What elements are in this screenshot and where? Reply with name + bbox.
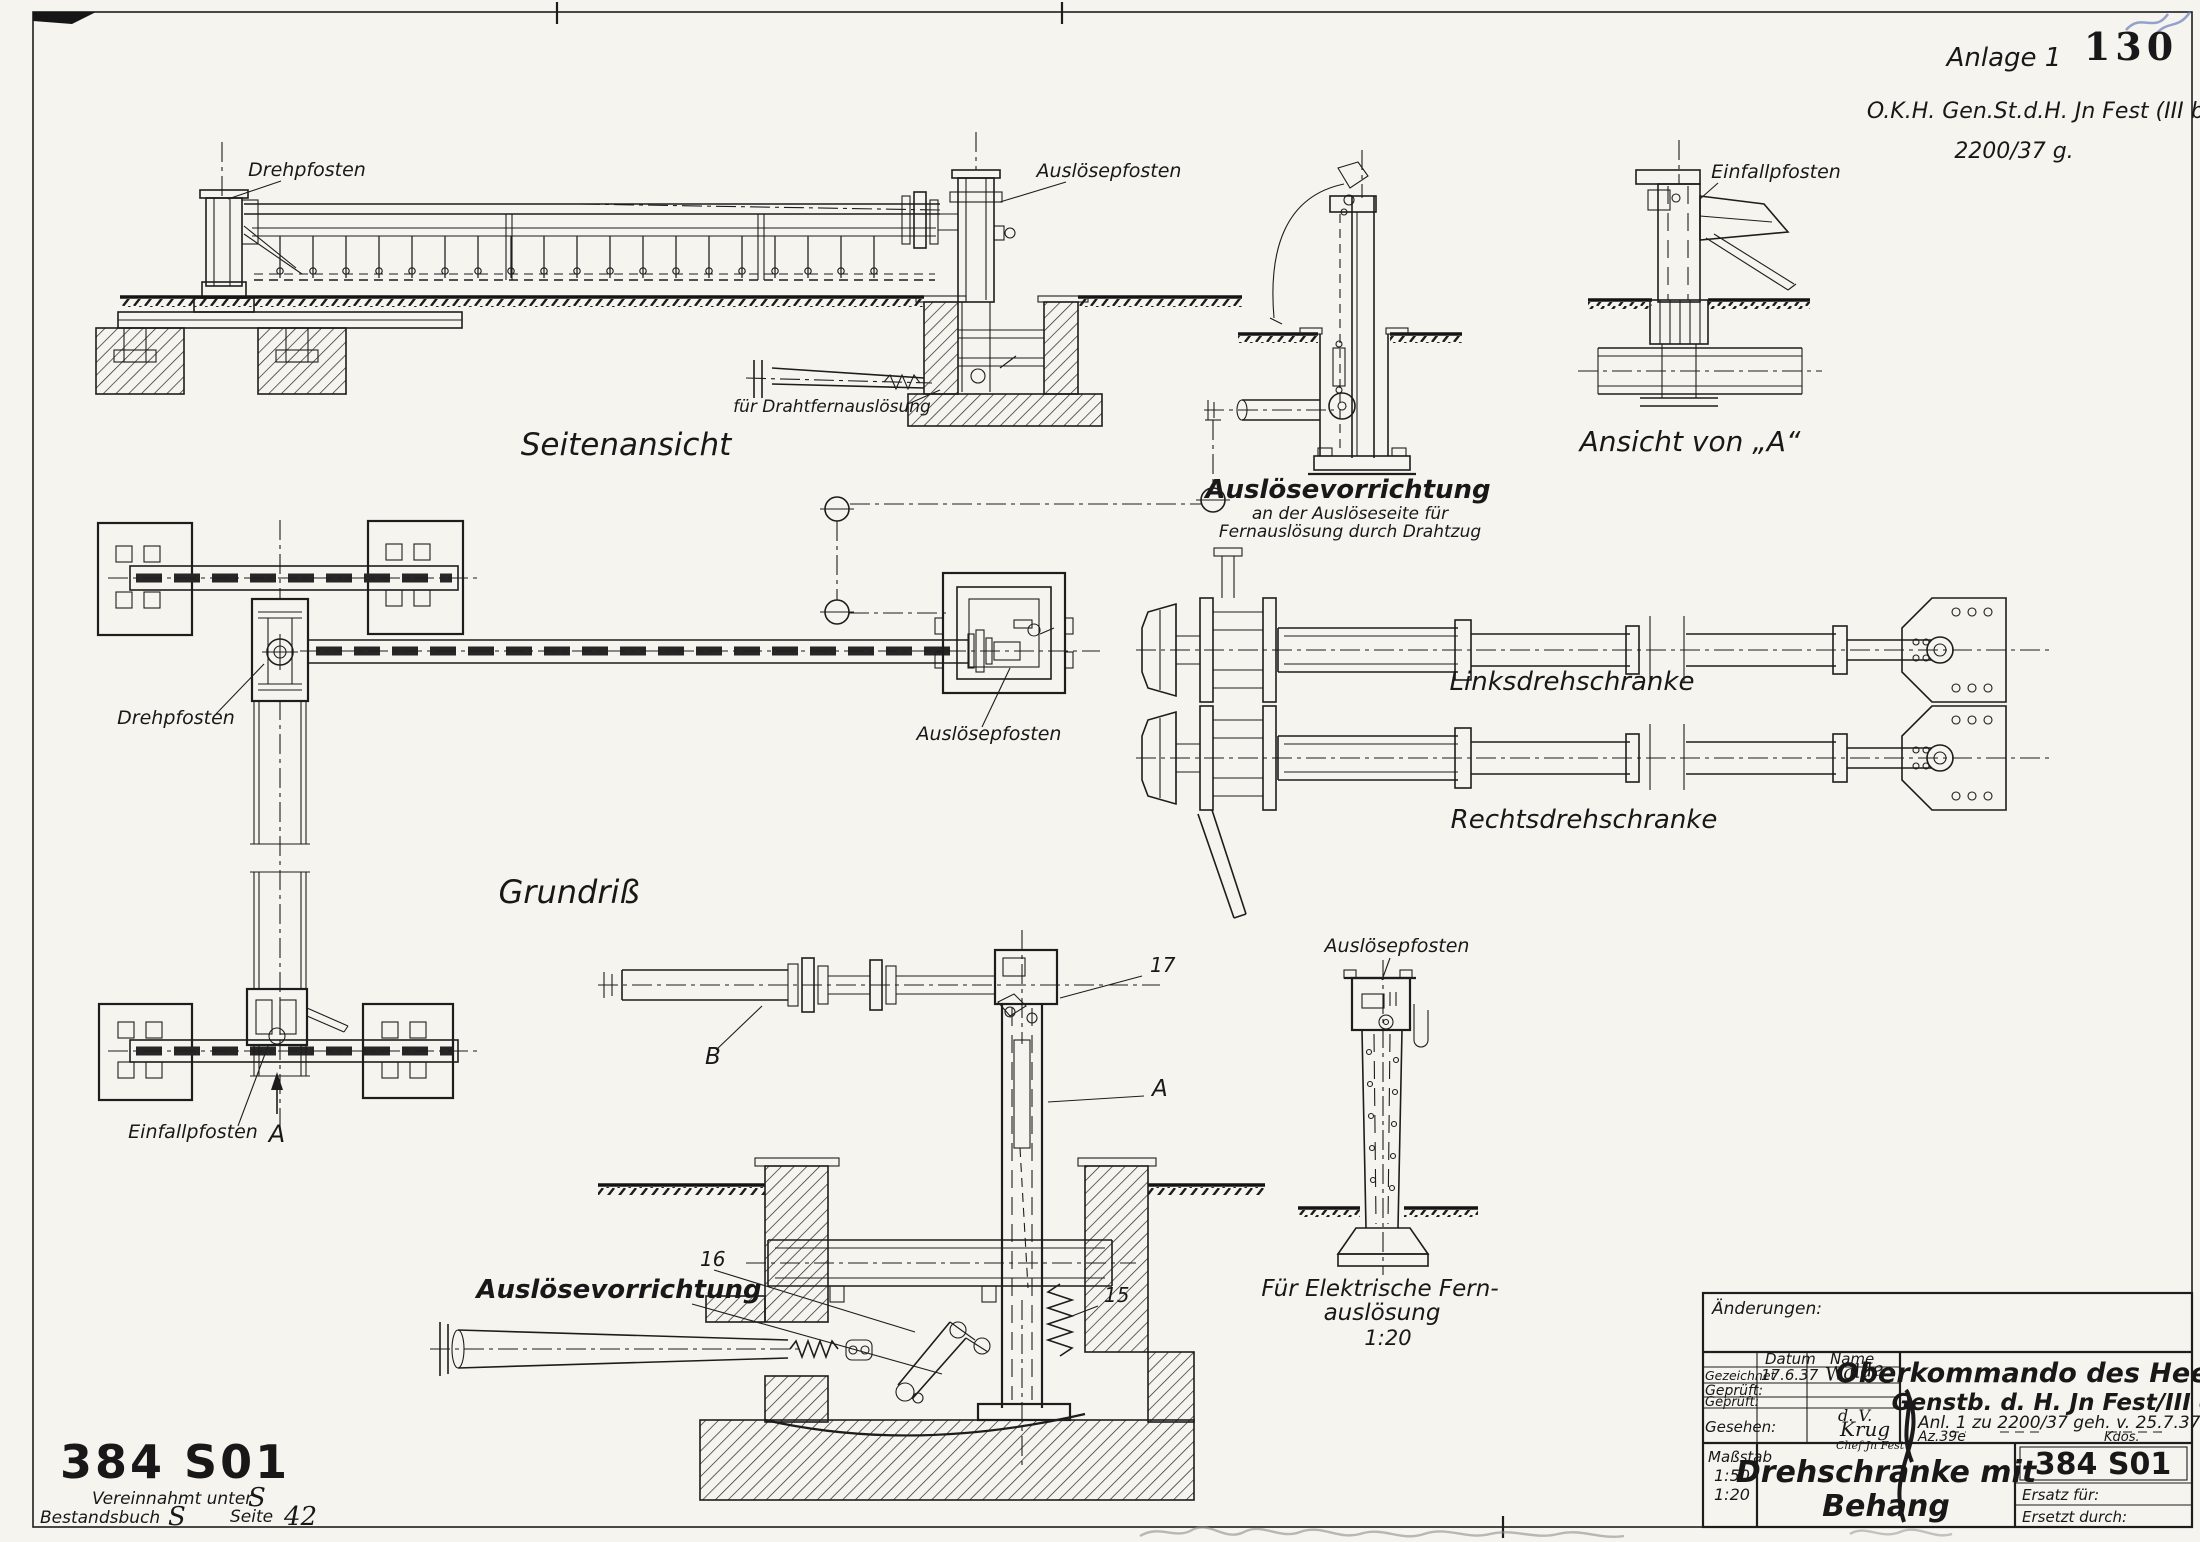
stamp-number: 384 S01 [60,1435,290,1489]
label-drehpfosten-side: Drehpfosten [248,159,366,181]
label-ausloesepfosten-electric: Auslösepfosten [1323,935,1470,957]
annex-label: Anlage 1 [1945,43,2062,73]
label-ausloeseseite: an der Auslöseseite für [1252,504,1449,524]
caption-electric-line2: auslösung [1324,1300,1441,1326]
tb-title-line1: Drehschranke mit [1736,1455,2038,1490]
title-grundriss: Grundriß [498,873,639,911]
header: Anlage 1 130 O.K.H. Gen.St.d.H. Jn Fest … [1867,24,2200,164]
org-line: O.K.H. Gen.St.d.H. Jn Fest (III b) [1867,99,2200,124]
scan-artifact [33,12,96,24]
tb-kdos: Kdos. [2104,1430,2140,1445]
label-ausloesepfosten-plan: Auslösepfosten [915,723,1062,745]
tb-gez-date: 17.6.37 [1761,1366,1819,1384]
title-ansicht-von-a: Ansicht von „A“ [1578,425,1801,458]
caption-electric-line1: Für Elektrische Fern- [1261,1276,1498,1302]
tb-sig-krug: Krug [1839,1417,1890,1441]
tb-org-line1: Oberkommando des Heeres [1836,1358,2200,1389]
technical-drawing: Anlage 1 130 O.K.H. Gen.St.d.H. Jn Fest … [0,0,2200,1542]
label-ausloesepfosten-side: Auslösepfosten [1035,160,1182,182]
tb-row-geprueft2: Geprüft: [1705,1395,1759,1410]
stamp-book-label: Bestandsbuch [40,1508,160,1528]
pencil-note-2 [1850,1530,1952,1536]
release-device-section: Auslösevorrichtung an der Auslöseseite f… [1203,150,1490,542]
inventory-stamp: 384 S01 Vereinnahmt unter S Bestandsbuch… [40,1435,317,1532]
section-arrow-a: A [267,1120,285,1148]
page-number-stamp: 130 [2084,24,2178,69]
file-number: 2200/37 g. [1954,139,2073,164]
side-view: Drehpfosten Auslösepfosten für Drahtfern… [96,132,1242,463]
part-label-16: 16 [700,1247,725,1271]
part-label-17: 17 [1150,953,1176,977]
label-einfallpfosten-viewa: Einfallpfosten [1711,161,1841,183]
tb-ersatz: Ersatz für: [2022,1486,2099,1504]
pencil-note [1140,1527,1624,1537]
title-block: Änderungen: Datum Name Gezeichnet 17.6.3… [1703,1293,2200,1527]
stamp-book-value: S [168,1502,186,1532]
caption-electric-scale: 1:20 [1364,1326,1411,1350]
tb-az: Az.39e [1917,1429,1966,1445]
label-rechtsdrehschranke: Rechtsdrehschranke [1451,805,1718,835]
label-fernausloesung-drahtzug: Fernauslösung durch Drahtzug [1219,522,1481,542]
part-label-a: A [1150,1076,1168,1102]
title-seitenansicht: Seitenansicht [521,427,733,463]
label-ausloesevorrichtung-detail: Auslösevorrichtung [474,1275,761,1305]
release-detail-section: 17 B A 16 Auslösevorrichtung 15 [430,930,1265,1500]
label-ausloesevorrichtung-top: Auslösevorrichtung [1203,475,1490,505]
stamp-page-value: 42 [283,1502,317,1532]
label-drehpfosten-plan: Drehpfosten [117,707,235,729]
part-label-15: 15 [1104,1283,1129,1307]
tb-row-gesehen: Gesehen: [1705,1418,1776,1436]
tb-ersetzt: Ersetzt durch: [2022,1508,2127,1526]
tb-title-line2: Behang [1822,1489,1950,1524]
electric-release-post: Auslösepfosten Für Elektrische Fern- aus… [1261,935,1498,1350]
stamp-page-label: Seite [230,1507,273,1527]
view-a: Einfallpfosten Ansicht von „A“ [1578,140,1841,458]
barrier-arms: Linksdrehschranke Rechtsdrehschranke [1136,548,2054,918]
drawing-sheet: Anlage 1 130 O.K.H. Gen.St.d.H. Jn Fest … [0,0,2200,1542]
tb-sig-chef: Chef Jn Fest [1836,1439,1905,1452]
tb-number: 384 S01 [2035,1447,2171,1482]
wire-route [820,420,1230,624]
label-drahtfernausloesung: für Drahtfernauslösung [733,397,931,417]
tb-changes: Änderungen: [1711,1298,1822,1319]
label-linksdrehschranke: Linksdrehschranke [1450,667,1695,697]
plan-view: A Drehpfosten Einfallpfosten Auslösepfos… [98,520,1100,1148]
